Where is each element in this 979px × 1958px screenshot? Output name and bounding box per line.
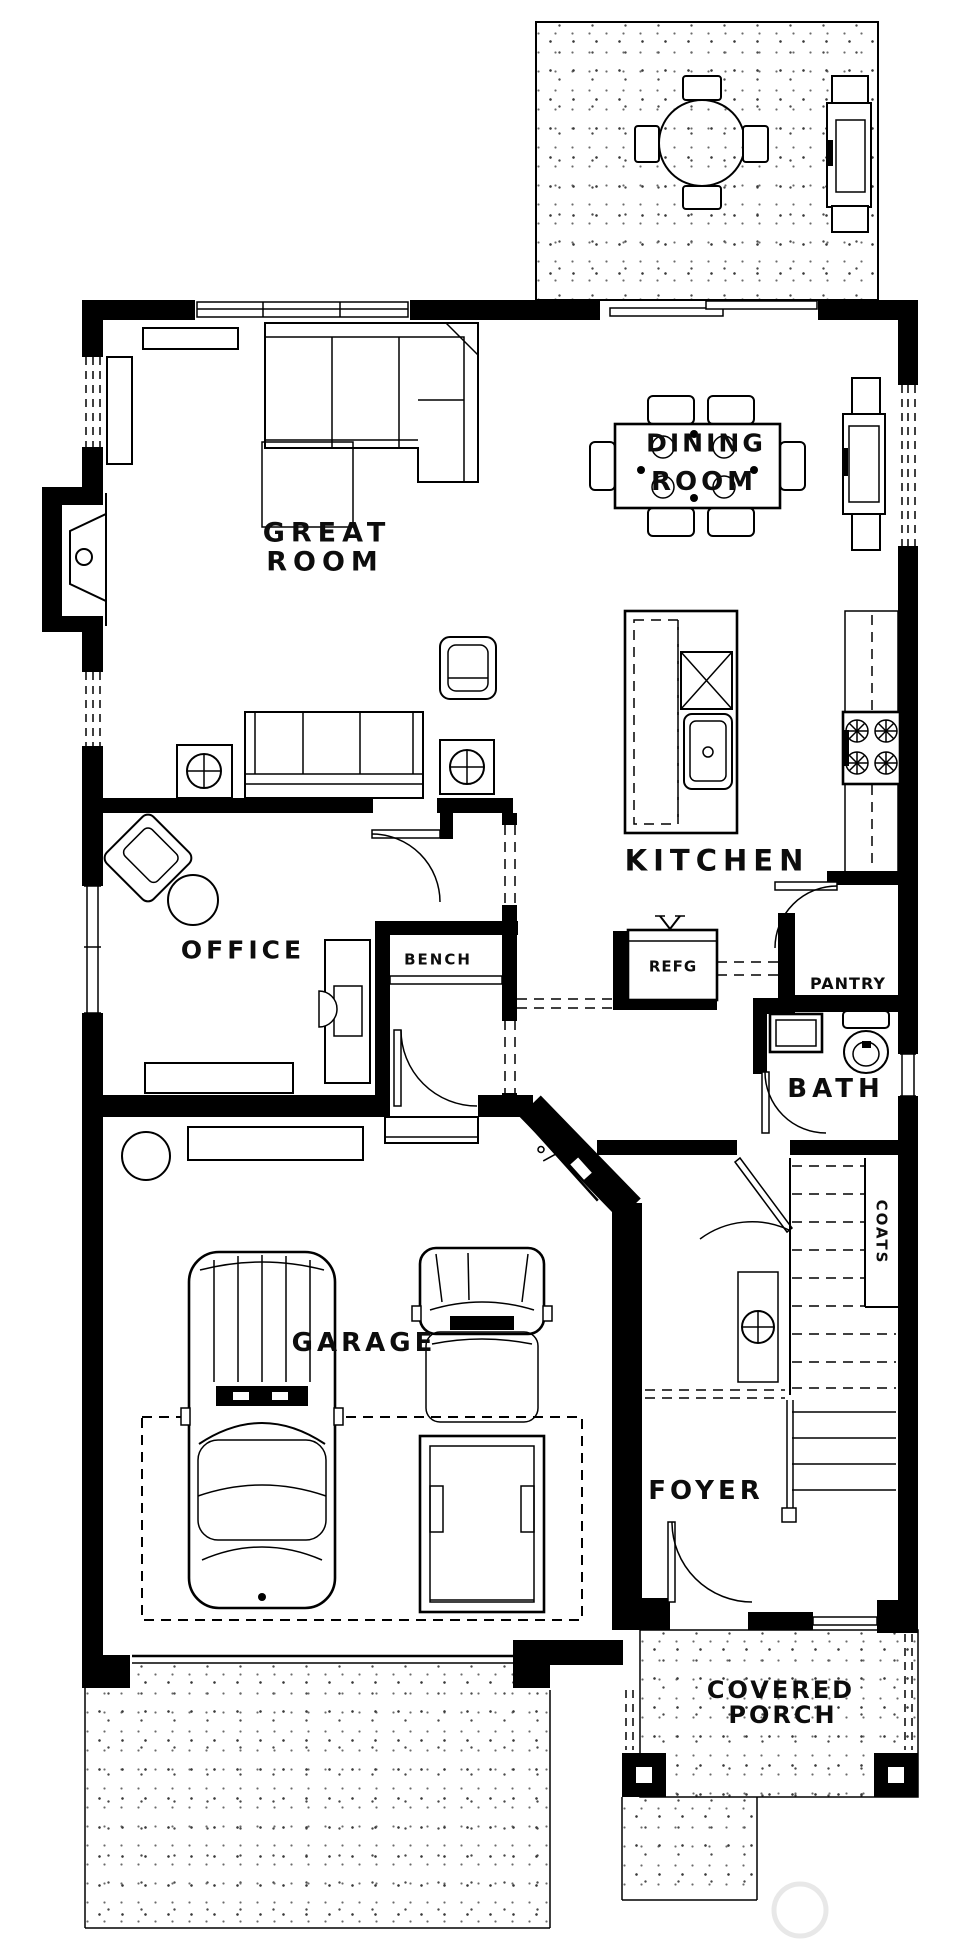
- bench-icon: [390, 976, 502, 984]
- fireplace-icon: [42, 487, 106, 632]
- garage-items: [122, 1110, 613, 1620]
- label-office: OFFICE: [181, 938, 305, 963]
- label-bath: BATH: [787, 1076, 884, 1102]
- truck-icon: [412, 1248, 552, 1612]
- garage-step-icon: [385, 1117, 478, 1143]
- front-door-icon: [668, 1522, 752, 1602]
- watermark-circle: [774, 1884, 826, 1936]
- label-garage: GARAGE: [292, 1330, 437, 1356]
- great-room-top-window-icon: [195, 300, 410, 320]
- end-table-lamp-icon: [440, 740, 494, 794]
- end-table-lamp-icon: [177, 745, 232, 798]
- toilet-icon: [843, 1011, 889, 1073]
- label-bench: BENCH: [404, 953, 472, 968]
- label-refg: REFG: [649, 960, 697, 975]
- staircase: [645, 1158, 898, 1522]
- garage-door-icon: [132, 1656, 513, 1663]
- great-room-left-window-icon: [82, 357, 103, 447]
- round-table-icon: [168, 875, 218, 925]
- mud-room: [385, 976, 502, 1143]
- label-great-room: ROOM: [266, 549, 384, 576]
- ottoman-icon: [262, 442, 353, 527]
- foyer-sidelight-icon: [813, 1612, 877, 1630]
- newel-icon: [782, 1508, 796, 1522]
- utility-circle-icon: [122, 1132, 170, 1180]
- bath-window-icon: [898, 1054, 918, 1096]
- dining-room-furniture: [590, 378, 885, 550]
- porch-post-icon: [874, 1753, 918, 1797]
- office-shelf-icon: [145, 1063, 293, 1093]
- car-icon: [181, 1252, 343, 1608]
- dining-window-icon: [898, 385, 918, 546]
- label-pantry: PANTRY: [810, 976, 886, 992]
- great-room-hall-door-icon: [372, 830, 440, 902]
- label-dining-room: ROOM: [651, 469, 757, 495]
- workbench-icon: [188, 1127, 363, 1160]
- kitchen-island-icon: [625, 611, 737, 833]
- corner-chair-icon: [101, 811, 194, 904]
- label-foyer: FOYER: [648, 1478, 764, 1504]
- console-icon: [143, 328, 238, 349]
- porch-post-icon: [622, 1753, 666, 1797]
- label-dining-room: DINING: [646, 431, 766, 456]
- bath-fixtures: [770, 1011, 889, 1073]
- office-window-icon: [82, 886, 103, 1013]
- stair-door-icon: [700, 1158, 792, 1239]
- buffet-icon: [843, 378, 885, 550]
- label-kitchen: KITCHEN: [625, 847, 810, 876]
- bookshelf-icon: [107, 357, 132, 464]
- label-great-room: GREAT: [263, 520, 392, 547]
- armchair-icon: [440, 637, 496, 699]
- garage-entry-door-icon: [394, 1030, 477, 1106]
- sofa-icon: [245, 712, 423, 798]
- patio-table-icon: [635, 76, 768, 209]
- left-window2-icon: [82, 672, 103, 746]
- patio: [536, 22, 878, 300]
- dining-table-icon: [590, 396, 805, 536]
- floor-plan: GREAT ROOM DINING ROOM KITCHEN OFFICE BE…: [0, 0, 979, 1958]
- walkway-outline: [622, 1797, 757, 1900]
- bath-sink-icon: [770, 1014, 822, 1052]
- post-chase-icon: [738, 1272, 778, 1382]
- label-coats: COATS: [874, 1200, 889, 1265]
- label-covered-porch: COVERED: [707, 1678, 855, 1702]
- sliding-door-icon: [610, 301, 817, 316]
- grill-icon: [827, 76, 871, 232]
- driveway-outline: [85, 1662, 550, 1928]
- label-covered-porch: PORCH: [728, 1703, 837, 1727]
- cooktop-counter-icon: [843, 611, 900, 873]
- sectional-sofa-icon: [265, 323, 478, 482]
